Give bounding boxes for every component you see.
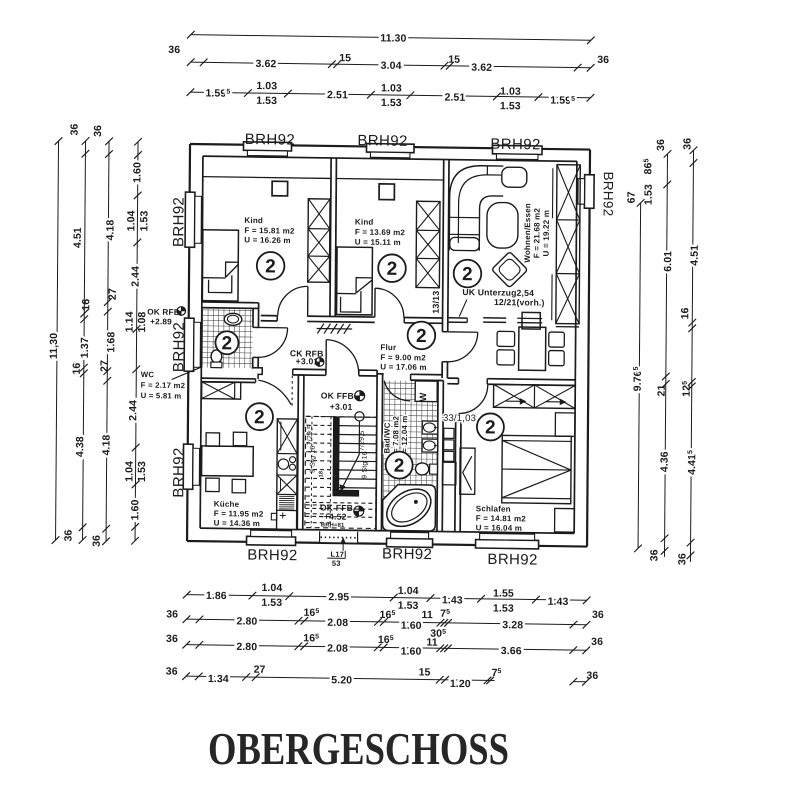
svg-text:1.04: 1.04 xyxy=(123,461,135,482)
svg-text:1.60: 1.60 xyxy=(401,620,422,632)
svg-text:2.08: 2.08 xyxy=(327,617,348,629)
svg-text:BRH92: BRH92 xyxy=(247,547,297,565)
svg-text:2.08: 2.08 xyxy=(327,643,348,655)
svg-text:2: 2 xyxy=(416,326,427,347)
svg-text:1.53: 1.53 xyxy=(643,184,655,205)
svg-text:Schlafen: Schlafen xyxy=(476,504,511,513)
svg-text:12/21(vorh.): 12/21(vorh.) xyxy=(494,297,545,308)
svg-text:2.80: 2.80 xyxy=(236,615,257,627)
svg-text:1.86: 1.86 xyxy=(206,590,227,602)
svg-text:BRH92: BRH92 xyxy=(170,322,187,373)
svg-text:3.28: 3.28 xyxy=(502,619,523,631)
svg-text:1.43: 1.43 xyxy=(442,594,463,606)
svg-text:BRH=81: BRH=81 xyxy=(321,523,345,529)
svg-text:1.53: 1.53 xyxy=(398,600,419,612)
svg-text:2: 2 xyxy=(394,456,405,477)
svg-text:BRH92: BRH92 xyxy=(170,197,187,248)
svg-text:OBERGESCHOSS: OBERGESCHOSS xyxy=(208,723,509,774)
svg-text:36: 36 xyxy=(91,535,103,547)
svg-text:1.60: 1.60 xyxy=(129,499,141,520)
svg-text:WC: WC xyxy=(141,370,155,379)
svg-text:U = 16.26 m: U = 16.26 m xyxy=(244,235,291,245)
svg-text:36: 36 xyxy=(166,633,178,645)
svg-text:1.43: 1.43 xyxy=(548,596,569,608)
svg-text:BRH92: BRH92 xyxy=(170,447,187,498)
svg-text:2: 2 xyxy=(254,407,265,428)
svg-text:W: W xyxy=(418,392,429,401)
svg-text:2.51: 2.51 xyxy=(444,92,465,104)
svg-text:3.04: 3.04 xyxy=(381,60,402,72)
svg-text:4.36: 4.36 xyxy=(659,451,671,472)
svg-text:F = 14.81 m2: F = 14.81 m2 xyxy=(476,514,527,524)
svg-text:2: 2 xyxy=(462,264,473,285)
svg-text:11: 11 xyxy=(422,609,433,621)
svg-text:13/13: 13/13 xyxy=(431,291,441,314)
svg-text:11: 11 xyxy=(426,637,437,649)
svg-text:1.04: 1.04 xyxy=(125,210,137,231)
svg-text:1.08: 1.08 xyxy=(136,311,148,332)
svg-text:Kind: Kind xyxy=(244,216,263,225)
svg-text:U = 19.22 m: U = 19.22 m xyxy=(542,210,551,257)
svg-text:4.51: 4.51 xyxy=(689,245,701,266)
svg-text:OK FFB: OK FFB xyxy=(321,391,354,401)
svg-text:11,30: 11,30 xyxy=(48,333,60,359)
svg-text:BRH92: BRH92 xyxy=(357,132,407,150)
svg-text:36: 36 xyxy=(69,123,81,135)
svg-text:F = 9.00 m2: F = 9.00 m2 xyxy=(380,353,426,363)
svg-text:1.68: 1.68 xyxy=(105,332,117,353)
svg-text:16: 16 xyxy=(679,307,691,319)
svg-text:6.01: 6.01 xyxy=(662,251,674,272)
svg-text:~+4.52: ~+4.52 xyxy=(319,511,347,521)
svg-text:36: 36 xyxy=(92,125,104,137)
svg-text:18: 18 xyxy=(319,471,325,478)
svg-text:1.55: 1.55 xyxy=(493,587,514,599)
svg-text:36: 36 xyxy=(592,609,604,621)
svg-text:U = 16.04 m: U = 16.04 m xyxy=(476,523,523,533)
svg-text:15: 15 xyxy=(419,666,431,678)
svg-text:L17: L17 xyxy=(331,550,345,559)
svg-text:4.51: 4.51 xyxy=(72,227,84,248)
svg-text:36: 36 xyxy=(586,670,598,682)
svg-text:BRH92: BRH92 xyxy=(601,171,616,216)
svg-text:3.66: 3.66 xyxy=(501,645,522,657)
svg-text:2.95: 2.95 xyxy=(328,591,349,603)
svg-text:15: 15 xyxy=(448,54,460,66)
svg-text:OK RFB: OK RFB xyxy=(147,307,180,316)
svg-text:BRH92: BRH92 xyxy=(490,136,540,154)
svg-text:U = 17.06 m: U = 17.06 m xyxy=(380,362,427,372)
svg-text:3.62: 3.62 xyxy=(255,58,276,70)
svg-text:1.04: 1.04 xyxy=(398,585,419,597)
svg-text:2.44: 2.44 xyxy=(127,400,139,421)
svg-text:33/1,03: 33/1,03 xyxy=(443,413,476,424)
svg-text:2: 2 xyxy=(387,259,398,280)
svg-text:1.37: 1.37 xyxy=(79,337,91,358)
svg-text:Kind: Kind xyxy=(355,217,374,226)
svg-text:5.20: 5.20 xyxy=(331,674,352,686)
svg-text:36: 36 xyxy=(597,54,609,66)
svg-text:16: 16 xyxy=(80,299,92,311)
svg-text:2.44: 2.44 xyxy=(130,266,142,287)
svg-text:36: 36 xyxy=(676,553,688,565)
svg-text:15: 15 xyxy=(339,52,351,64)
svg-text:1.53: 1.53 xyxy=(256,95,277,107)
svg-text:+2.89: +2.89 xyxy=(150,317,172,326)
svg-text:2: 2 xyxy=(485,417,496,438)
svg-text:36: 36 xyxy=(63,529,75,541)
svg-text:1.14: 1.14 xyxy=(124,311,136,332)
svg-text:1.34: 1.34 xyxy=(208,673,229,685)
svg-text:2: 2 xyxy=(265,256,276,277)
svg-text:36: 36 xyxy=(166,608,178,620)
svg-text:1.03: 1.03 xyxy=(381,82,402,94)
svg-text:36: 36 xyxy=(682,138,694,150)
svg-text:67: 67 xyxy=(626,191,638,203)
svg-text:36: 36 xyxy=(591,636,603,648)
svg-text:F = 21.68 m2: F = 21.68 m2 xyxy=(532,208,541,259)
svg-text:F = 13.69 m2: F = 13.69 m2 xyxy=(355,227,406,237)
svg-text:1.60: 1.60 xyxy=(131,162,143,183)
svg-text:BRH92: BRH92 xyxy=(245,131,295,149)
svg-text:U = 5.81 m: U = 5.81 m xyxy=(141,391,182,401)
svg-text:36: 36 xyxy=(655,139,667,151)
svg-text:27: 27 xyxy=(254,664,266,676)
svg-text:53: 53 xyxy=(332,559,341,568)
svg-text:F = 2.17 m2: F = 2.17 m2 xyxy=(141,381,186,391)
svg-text:4.38: 4.38 xyxy=(74,436,86,457)
svg-text:Küche: Küche xyxy=(214,500,240,509)
svg-text:21: 21 xyxy=(656,384,668,396)
svg-text:1.53: 1.53 xyxy=(500,100,521,112)
svg-text:+3.01: +3.01 xyxy=(330,402,353,412)
svg-text:1.53: 1.53 xyxy=(136,461,148,482)
svg-text:1.53: 1.53 xyxy=(261,597,282,609)
svg-text:36: 36 xyxy=(166,665,178,677)
svg-text:4.18: 4.18 xyxy=(100,434,112,455)
svg-text:Flur: Flur xyxy=(380,343,396,352)
svg-text:BRH92: BRH92 xyxy=(487,551,537,569)
svg-text:36: 36 xyxy=(648,549,660,561)
svg-text:2.51: 2.51 xyxy=(327,89,348,101)
svg-text:BRH92: BRH92 xyxy=(382,545,432,563)
svg-text:1.03: 1.03 xyxy=(256,80,277,92)
svg-text:Wohnen/Essen: Wohnen/Essen xyxy=(523,203,532,263)
svg-text:1.53: 1.53 xyxy=(493,602,514,614)
svg-text:36: 36 xyxy=(168,44,180,56)
svg-text:1.53: 1.53 xyxy=(138,210,150,231)
svg-text:U = 14.36 m: U = 14.36 m xyxy=(214,519,261,529)
svg-text:1.20: 1.20 xyxy=(450,678,471,690)
svg-text:1.04: 1.04 xyxy=(261,582,282,594)
svg-text:1.53: 1.53 xyxy=(381,97,402,109)
svg-text:U = 15.11 m: U = 15.11 m xyxy=(355,237,401,247)
svg-text:27: 27 xyxy=(99,360,111,372)
svg-text:16: 16 xyxy=(71,363,83,375)
svg-text:3.62: 3.62 xyxy=(471,62,492,74)
svg-text:11.30: 11.30 xyxy=(380,32,406,44)
svg-text:1.03: 1.03 xyxy=(500,86,521,98)
svg-text:4.18: 4.18 xyxy=(104,220,116,241)
svg-text:27: 27 xyxy=(107,288,119,300)
svg-text:2.80: 2.80 xyxy=(236,641,257,653)
svg-text:F = 11.95 m2: F = 11.95 m2 xyxy=(214,509,264,519)
svg-text:2: 2 xyxy=(221,333,232,354)
svg-text:F = 15.81 m2: F = 15.81 m2 xyxy=(244,226,295,236)
svg-text:1.60: 1.60 xyxy=(401,645,422,657)
